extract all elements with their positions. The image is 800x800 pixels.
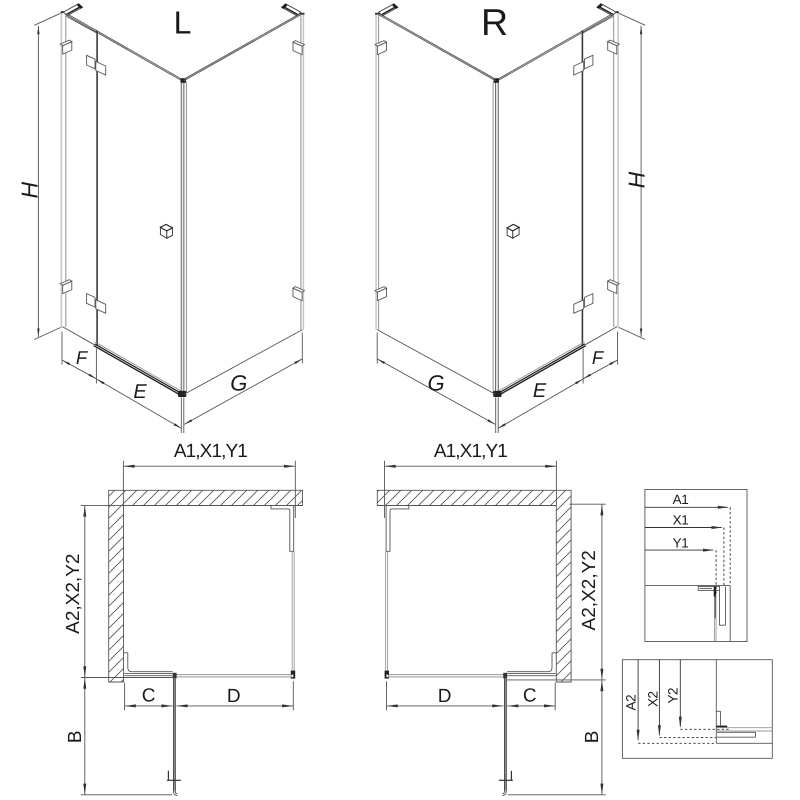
svg-text:H: H: [624, 171, 650, 188]
svg-text:D: D: [227, 686, 241, 707]
svg-text:Y2: Y2: [665, 688, 680, 704]
svg-text:F: F: [76, 347, 89, 368]
svg-text:A1,X1,Y1: A1,X1,Y1: [174, 441, 247, 462]
svg-text:R: R: [481, 1, 508, 43]
svg-text:E: E: [533, 380, 547, 402]
svg-text:C: C: [142, 686, 156, 707]
svg-text:G: G: [427, 371, 444, 396]
svg-text:B: B: [65, 730, 86, 743]
svg-text:B: B: [582, 731, 603, 744]
svg-text:Y1: Y1: [673, 536, 689, 551]
svg-text:A2,X2,Y2: A2,X2,Y2: [579, 550, 600, 630]
svg-text:L: L: [174, 5, 192, 41]
svg-text:A2: A2: [623, 695, 638, 711]
svg-text:H: H: [16, 182, 42, 199]
svg-text:X1: X1: [673, 513, 689, 528]
svg-text:A1,X1,Y1: A1,X1,Y1: [434, 441, 507, 462]
svg-text:A2,X2,Y2: A2,X2,Y2: [63, 554, 84, 634]
svg-text:F: F: [592, 347, 605, 368]
svg-text:E: E: [133, 381, 147, 403]
svg-text:A1: A1: [673, 492, 689, 507]
svg-text:D: D: [438, 686, 452, 707]
svg-text:C: C: [523, 686, 537, 707]
svg-text:G: G: [230, 371, 247, 396]
svg-text:X2: X2: [645, 691, 660, 707]
